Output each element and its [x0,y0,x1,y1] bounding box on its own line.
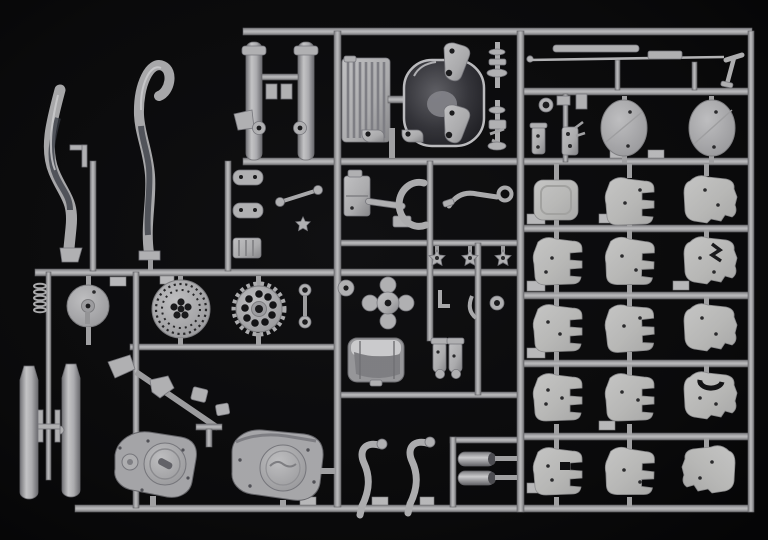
model-kit-sprue-photo [0,0,768,540]
vignette-overlay [0,0,768,540]
photo-stage [0,0,768,540]
